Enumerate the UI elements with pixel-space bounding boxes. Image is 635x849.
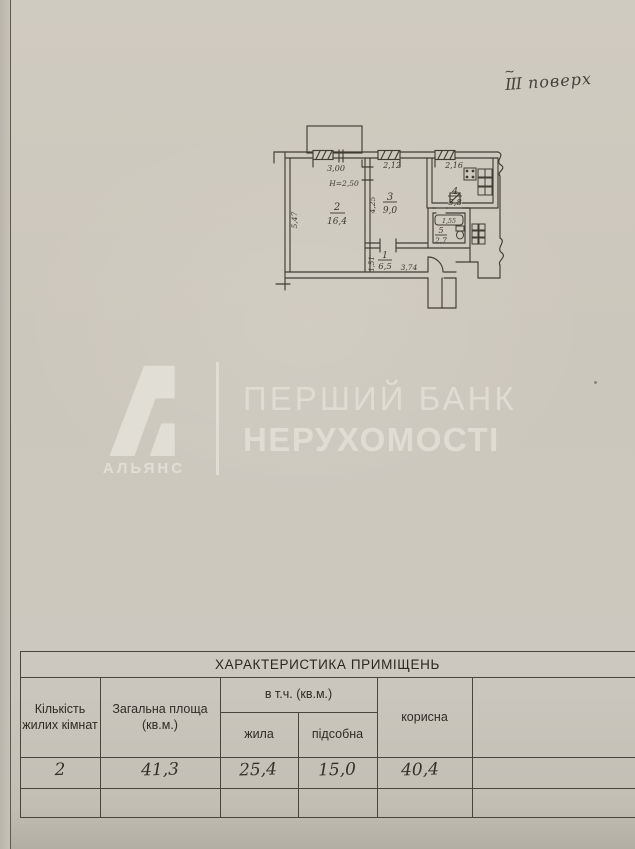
dim-ceiling-height: Н=2,50 [328,179,359,188]
vent-shaft-icon [478,169,492,195]
room3-area: 9,0 [383,206,398,216]
header-room-count: Кількість жилих кімнат [22,677,98,757]
header-total-area: Загальна площа (кв.м.) [102,677,218,757]
characteristics-table: ХАРАКТЕРИСТИКА ПРИМІЩЕНЬ Кількість жилих… [20,651,635,817]
floor-plan: 3,00 Н=2,50 2 16,4 5,47 2,12 3 9,0 4,25 … [268,112,508,317]
room1-number: 1 [382,251,388,261]
scanned-document-page: ~ІІІ поверх [0,0,635,849]
window-icon [378,151,400,160]
agency-watermark: АЛЬЯНС ПЕРШИЙ БАНК НЕРУХОМОСТІ [98,360,517,477]
table-line [100,677,101,817]
tilde-mark: ~ [504,64,516,80]
dim-hall-width: 3,74 [401,263,418,272]
window-icon [313,151,333,160]
value-auxiliary-area: 15,0 [307,759,368,781]
dim-room3-width: 2,12 [382,161,401,170]
plan-fixtures [435,168,492,244]
room2-area: 16,4 [327,217,347,227]
break-squiggle-icon [498,152,503,176]
paper-speck [594,381,597,384]
value-total-area: 41,3 [130,759,191,781]
stove-icon [464,168,476,180]
room5-number: 5 [438,226,443,235]
brand-name: АЛЬЯНС [103,460,185,477]
room3-number: 3 [387,192,393,203]
toilet-icon [456,226,464,239]
room4-number: 4 [451,186,458,197]
agency-logo-block: АЛЬЯНС [98,360,190,477]
table-line [472,677,473,817]
dim-bathtub: 1,55 [442,218,456,225]
value-useful-area: 40,4 [390,759,451,781]
value-living-area: 25,4 [228,759,289,781]
plan-walls [274,126,503,308]
room4-area: 5,8 [448,198,462,208]
dim-hall-height: 1,51 [368,256,376,272]
watermark-text: ПЕРШИЙ БАНК НЕРУХОМОСТІ [243,360,517,477]
table-line [20,757,635,758]
watermark-line1: ПЕРШИЙ БАНК [243,378,517,420]
dim-room2-width: 3,00 [327,164,345,173]
entrance-shaft [428,278,456,308]
room5-area: 2,7 [434,236,447,245]
door-arc-icon [428,257,443,272]
header-living: жила [220,712,298,757]
dim-room3-height: 4,25 [368,196,377,214]
break-squiggle-icon [499,238,503,265]
room1-area: 6,5 [378,262,392,272]
window-icon [435,151,455,160]
floor-word: поверх [527,69,592,92]
room2-number: 2 [333,202,340,213]
value-room-count: 2 [38,759,83,780]
table-title: ХАРАКТЕРИСТИКА ПРИМІЩЕНЬ [20,651,635,677]
watermark-divider [216,362,219,475]
table-line [20,817,635,818]
alliance-logo-icon [103,360,185,456]
balcony-outline [307,126,362,153]
dim-room2-height: 5,47 [290,211,299,228]
floor-note: ~ІІІ поверх [504,69,592,94]
vent-shaft-icon [472,224,485,244]
page-fold-edge [0,0,11,849]
header-auxiliary: підсобна [298,712,377,757]
floor-number-roman: ~ІІІ [504,74,521,94]
table-line [20,788,635,789]
watermark-line2: НЕРУХОМОСТІ [243,420,517,460]
header-including: в т.ч. (кв.м.) [220,677,377,712]
header-useful: корисна [377,677,472,757]
dim-room4-width: 2,16 [444,161,463,170]
